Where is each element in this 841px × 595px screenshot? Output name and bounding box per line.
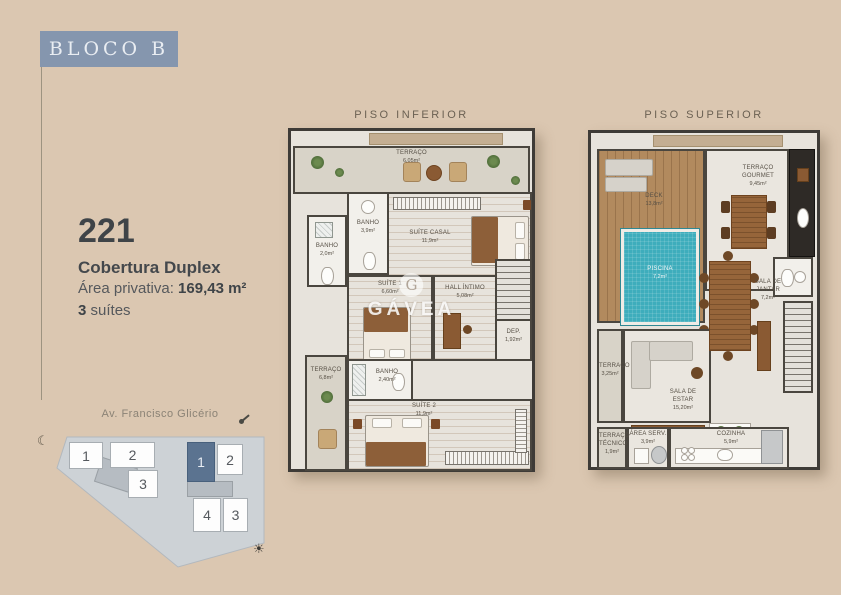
site-plan: Av. Francisco Glicério ☾ ☀ 1 2 3 1 2 4 3 xyxy=(35,400,290,580)
sofa xyxy=(631,341,651,389)
chair xyxy=(721,227,730,239)
room-label-terraco-gourmet: TERRAÇO GOURMET 9,45m² xyxy=(733,165,783,188)
badge-divider-line xyxy=(41,67,42,400)
laundry-sink-icon xyxy=(651,446,667,464)
room-label-cozinha: COZINHA 5,9m² xyxy=(701,431,761,446)
chair xyxy=(463,325,472,334)
chair xyxy=(723,251,733,261)
pillow xyxy=(372,418,392,428)
site-block-left-2: 2 xyxy=(110,442,155,468)
grill-icon xyxy=(797,168,809,182)
shower-icon xyxy=(315,222,333,238)
chair xyxy=(767,201,776,213)
page: BLOCO B 221 Cobertura Duplex Área privat… xyxy=(0,0,841,595)
room-label-terraco-bottom: TERRAÇO 6,8m² xyxy=(307,367,345,382)
stove-burner-icon xyxy=(688,447,695,454)
blanket xyxy=(472,217,498,263)
sink-icon xyxy=(797,208,809,228)
room-label-deck: DECK 13,8m² xyxy=(629,193,679,208)
plant-icon xyxy=(321,391,333,403)
chair xyxy=(699,273,709,283)
nightstand xyxy=(353,419,362,429)
round-table xyxy=(426,165,442,181)
desk xyxy=(443,313,461,349)
unit-number: 221 xyxy=(78,212,135,251)
chair xyxy=(767,227,776,239)
plant-icon xyxy=(511,176,520,185)
sun-icon: ☀ xyxy=(253,541,265,557)
pillow xyxy=(369,349,385,358)
stove-burner-icon xyxy=(688,454,695,461)
lounger xyxy=(605,159,653,176)
compass-icon xyxy=(238,411,252,425)
toilet-icon xyxy=(363,252,376,270)
pillow xyxy=(515,222,525,239)
nightstand xyxy=(431,419,440,429)
floorplan-superior: DECK 13,8m² PISCINA 7,2m² TERRAÇO GOURME… xyxy=(588,130,820,470)
chair xyxy=(699,299,709,309)
armchair xyxy=(449,162,467,182)
kitchen-sink-icon xyxy=(717,449,733,461)
toilet-icon xyxy=(321,267,334,285)
armchair xyxy=(403,162,421,182)
pouf xyxy=(691,367,703,379)
site-block-right-3: 3 xyxy=(223,498,248,532)
toilet-icon xyxy=(392,373,405,391)
plant-icon xyxy=(335,168,344,177)
chair xyxy=(723,351,733,361)
sink-icon xyxy=(361,200,375,214)
unit-suites-count: 3 xyxy=(78,302,86,319)
room-label-piscina: PISCINA 7,2m² xyxy=(624,266,696,281)
room-label-banho-casal: BANHO 3,9m² xyxy=(349,220,387,235)
site-block-right-4: 4 xyxy=(193,498,221,532)
moon-icon: ☾ xyxy=(37,433,49,449)
site-block-right-1-highlighted: 1 xyxy=(187,442,215,482)
sink-icon xyxy=(794,271,806,283)
unit-area-label: Área privativa: xyxy=(78,280,174,297)
room-label-sala-estar: SALA DE ESTAR 15,20m² xyxy=(661,389,705,412)
room-area-servico: ÁREA SERV. 3,9m² xyxy=(627,427,669,469)
pillow xyxy=(402,418,422,428)
street-label: Av. Francisco Glicério xyxy=(75,408,245,420)
site-block-left-3: 3 xyxy=(128,470,158,498)
room-cozinha: COZINHA 5,9m² xyxy=(669,427,789,469)
blanket xyxy=(364,308,408,332)
room-dep: DEP. 1,92m² xyxy=(495,319,532,361)
fridge-icon xyxy=(761,430,783,464)
toilet-icon xyxy=(781,269,794,287)
lounger xyxy=(605,177,647,192)
washer-icon xyxy=(634,448,649,464)
unit-type: Cobertura Duplex xyxy=(78,258,221,278)
floorplan-inferior: TERRAÇO 6,05m² BANHO 3,9m² BANHO 2,0m xyxy=(288,128,535,472)
parapet-wall xyxy=(369,133,503,145)
room-banho-casal: BANHO 3,9m² xyxy=(347,192,389,275)
wardrobe xyxy=(445,451,529,465)
bloco-badge: BLOCO B xyxy=(40,31,178,67)
site-polygon xyxy=(35,400,290,580)
blanket xyxy=(366,442,426,466)
stairs xyxy=(495,259,532,321)
stairs xyxy=(783,301,813,393)
wardrobe xyxy=(515,409,527,453)
bed xyxy=(363,307,411,361)
unit-area-value: 169,43 m² xyxy=(178,280,246,297)
plant-icon xyxy=(311,156,324,169)
pillow xyxy=(389,349,405,358)
room-terraco-top: TERRAÇO 6,05m² xyxy=(293,146,530,194)
pillow xyxy=(515,243,525,260)
room-label-suite-1: SUÍTE 1 6,60m² xyxy=(349,281,431,296)
room-hall-intimo: HALL ÍNTIMO 5,08m² xyxy=(433,275,497,361)
room-label-banho-small: BANHO 2,0m² xyxy=(309,243,345,258)
chair xyxy=(721,201,730,213)
room-banho-2: BANHO 2,40m² xyxy=(347,359,413,401)
parapet-wall xyxy=(653,135,783,147)
room-label-terraco-left: TERRAÇO 3,25m² xyxy=(599,363,621,378)
gourmet-table xyxy=(731,195,767,249)
room-sala-estar: SALA DE ESTAR 15,20m² xyxy=(623,329,711,423)
bloco-label: BLOCO B xyxy=(49,38,169,60)
stove-burner-icon xyxy=(681,454,688,461)
nightstand xyxy=(523,200,531,210)
site-connector xyxy=(187,481,233,497)
room-label-terraco-tecnico: TERRAÇO TÉCNICO 1,9m² xyxy=(599,433,625,456)
room-terraco-tecnico: TERRAÇO TÉCNICO 1,9m² xyxy=(597,427,627,469)
room-deck: DECK 13,8m² PISCINA 7,2m² xyxy=(597,149,705,323)
pool: PISCINA 7,2m² xyxy=(621,229,699,325)
site-block-left-1: 1 xyxy=(69,442,103,469)
unit-suites: 3 suítes xyxy=(78,302,131,319)
room-suite-2: SUÍTE 2 11,9m² xyxy=(347,399,532,471)
plant-icon xyxy=(487,155,500,168)
unit-suites-label: suítes xyxy=(91,302,131,319)
site-block-right-2: 2 xyxy=(217,444,243,475)
room-label-dep: DEP. 1,92m² xyxy=(497,329,530,344)
piso-superior-title: PISO SUPERIOR xyxy=(588,109,820,121)
gourmet-counter xyxy=(789,149,815,257)
room-label-hall-intimo: HALL ÍNTIMO 5,08m² xyxy=(435,285,495,300)
room-banho-small: BANHO 2,0m² xyxy=(307,215,347,287)
armchair xyxy=(318,429,337,449)
stove-burner-icon xyxy=(681,447,688,454)
shower-icon xyxy=(352,364,366,396)
unit-area: Área privativa: 169,43 m² xyxy=(78,280,246,297)
sofa xyxy=(649,341,693,361)
bar-cabinet xyxy=(757,321,771,371)
room-terraco-bottom: TERRAÇO 6,8m² xyxy=(305,355,347,471)
piso-inferior-title: PISO INFERIOR xyxy=(288,109,535,121)
room-terraco-left: TERRAÇO 3,25m² xyxy=(597,329,623,423)
bed xyxy=(365,415,429,467)
room-lavabo xyxy=(773,257,813,297)
room-label-suite-casal: SUÍTE CASAL 11,9m² xyxy=(395,230,465,245)
room-suite-1: SUÍTE 1 6,60m² xyxy=(347,275,433,361)
dining-table xyxy=(709,261,751,351)
room-label-area-servico: ÁREA SERV. 3,9m² xyxy=(629,431,667,446)
wardrobe xyxy=(393,197,481,210)
